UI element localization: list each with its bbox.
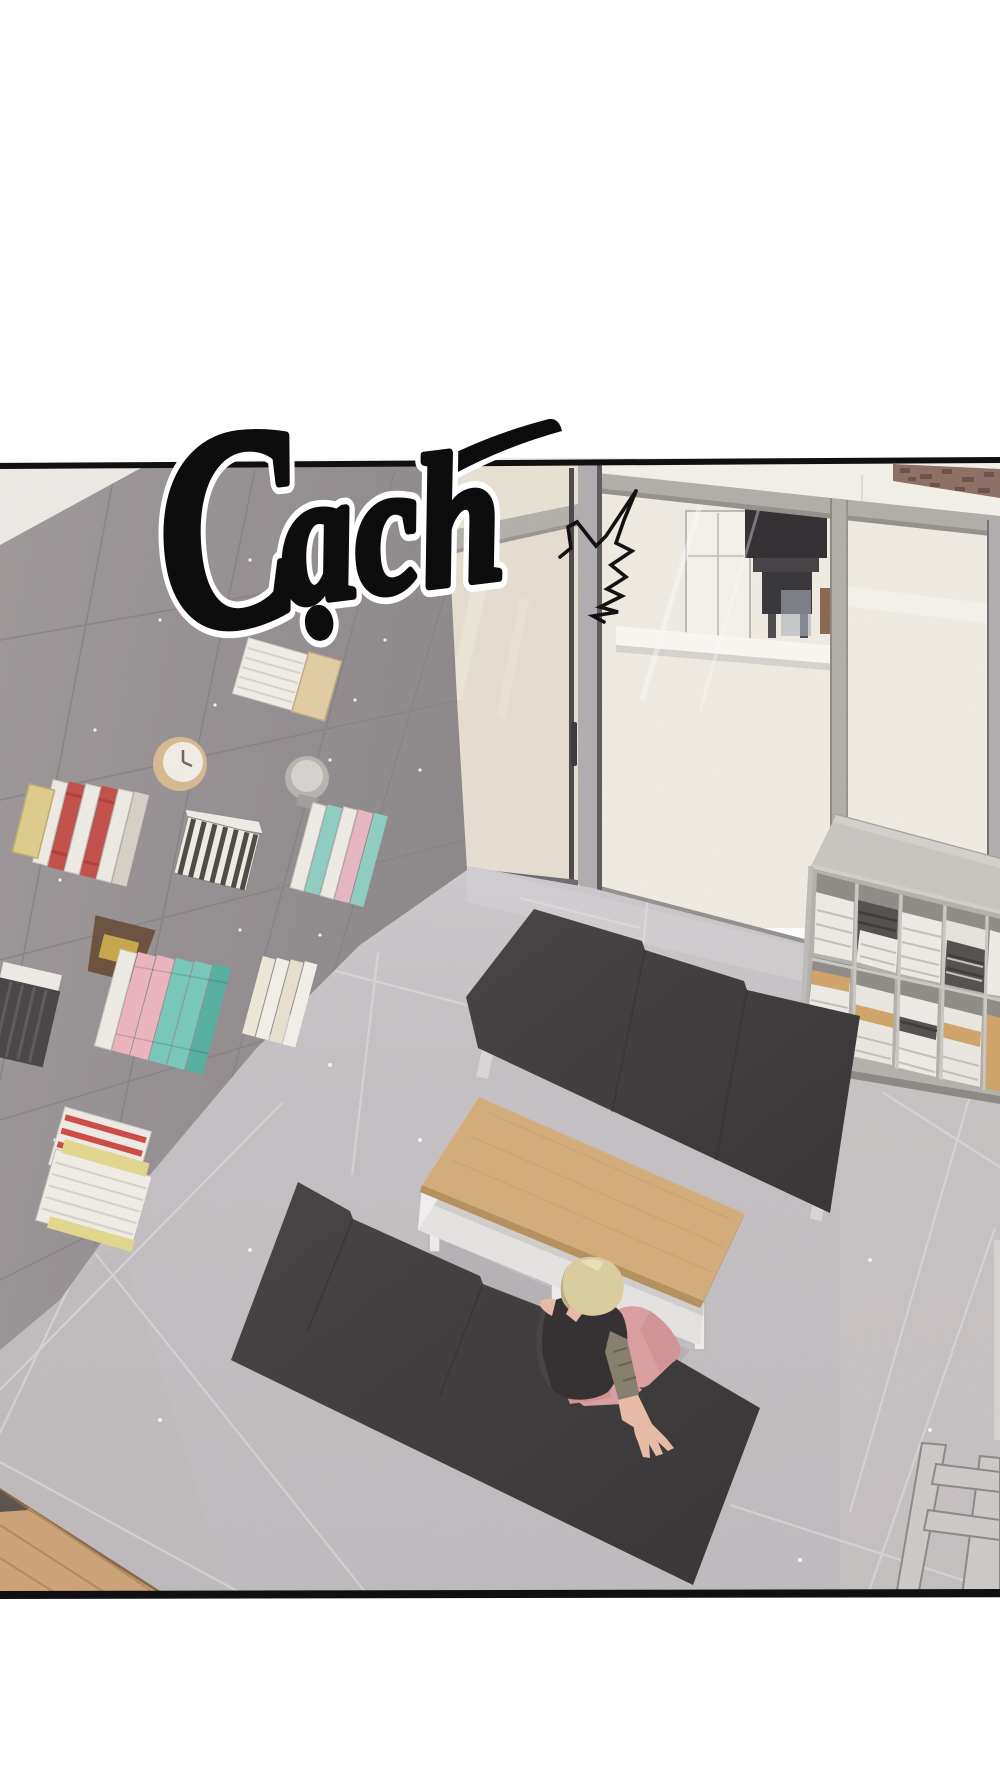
svg-text:ạch: ạch — [267, 410, 513, 645]
